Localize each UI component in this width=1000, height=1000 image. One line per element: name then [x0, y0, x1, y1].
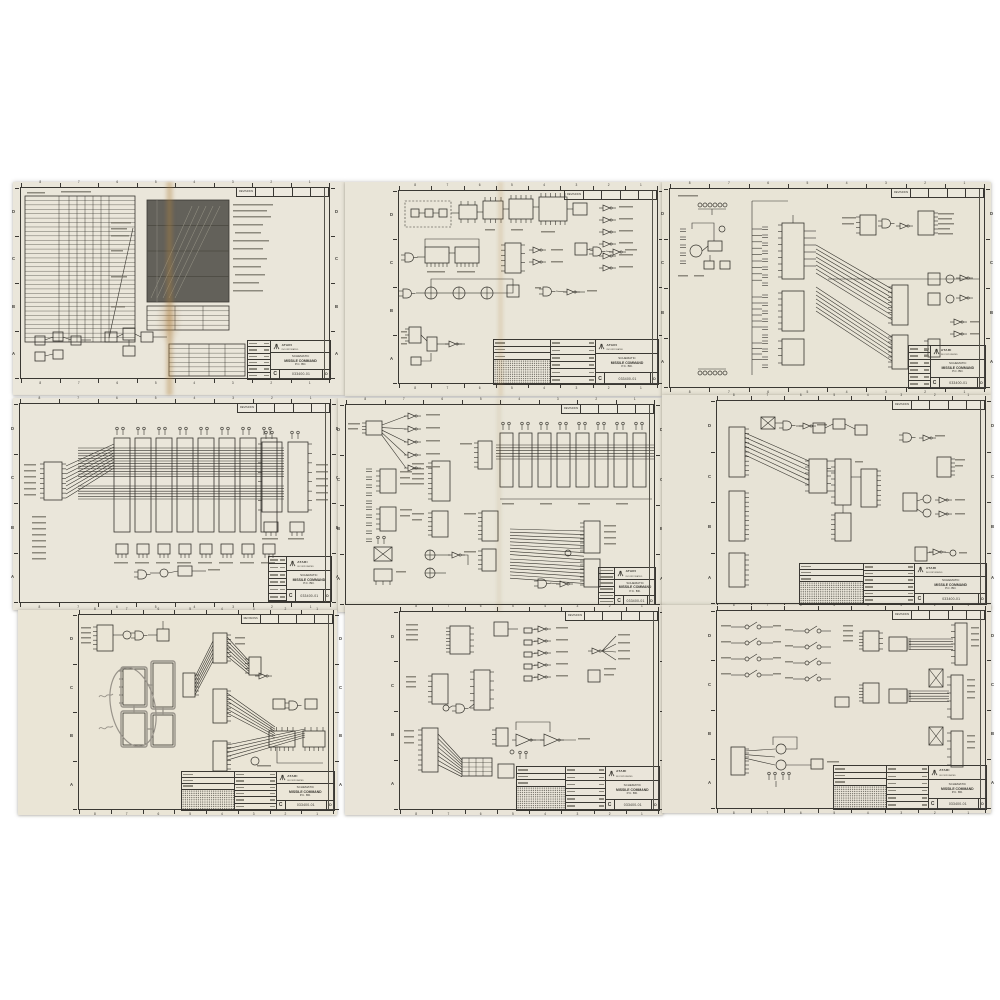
zone-tick: [73, 664, 77, 665]
zone-letter: C: [990, 261, 993, 265]
revision-cell: [949, 611, 967, 619]
zone-tick: [15, 188, 19, 189]
drawing-number: 033400-01: [624, 596, 647, 605]
zone-letter: A: [390, 357, 393, 361]
zone-tick: [332, 454, 336, 455]
approvals-column: [800, 564, 864, 604]
drawing-title: SCHEMATICMISSILE COMMANDP.C. BD.: [931, 360, 985, 378]
zone-number: 5: [833, 394, 835, 397]
company-row: ATARIINCORPORATED: [915, 564, 986, 577]
text-bar: [280, 581, 285, 583]
zone-letter: D: [339, 637, 342, 641]
zone-tick: [214, 379, 215, 383]
field-row: [887, 766, 928, 773]
zone-number: 5: [480, 398, 482, 401]
revision-letter: D: [647, 596, 655, 605]
text-bar: [236, 799, 244, 801]
zone-letter: D: [11, 427, 14, 431]
pcb-artwork-thumbnail: [834, 786, 886, 809]
text-bar: [264, 349, 269, 351]
zone-number: 3: [576, 605, 578, 608]
zone-number: 3: [900, 604, 902, 607]
zone-tick: [539, 400, 540, 404]
title-block-main: ATARIINCORPORATEDSCHEMATICMISSILE COMMAN…: [277, 772, 334, 810]
field-row: [887, 795, 928, 802]
revision-cell: [603, 612, 621, 620]
zone-number: 2: [271, 606, 273, 609]
approval-row: [494, 340, 550, 347]
revision-cell: [275, 404, 293, 412]
revision-cell: [261, 615, 279, 623]
field-row: [566, 796, 604, 803]
field-row: [235, 804, 276, 810]
zone-tick: [664, 189, 668, 190]
zone-number: 4: [221, 813, 223, 816]
revision-cell: [929, 189, 947, 197]
zone-tick: [98, 379, 99, 383]
zone-tick: [340, 405, 344, 406]
zone-number: 2: [284, 813, 286, 816]
zone-tick: [331, 236, 335, 237]
company-subtitle: INCORPORATED: [939, 775, 956, 777]
text-bar: [495, 349, 505, 351]
field-row: [909, 381, 930, 388]
title-block-main: ATARIINCORPORATEDSCHEMATICMISSILE COMMAN…: [915, 564, 986, 604]
text-bar: [589, 342, 594, 344]
zone-number: 4: [867, 604, 869, 607]
company-name: ATARI: [626, 569, 637, 573]
text-bar: [264, 343, 269, 345]
drawing-title: SCHEMATICMISSILE COMMANDP.C. BD.: [915, 577, 986, 594]
text-bar: [552, 364, 560, 366]
field-row: [909, 353, 930, 360]
text-bar: [270, 559, 278, 561]
zone-number: 8: [414, 387, 416, 390]
zone-letter: D: [708, 634, 711, 638]
zone-number: 8: [38, 606, 40, 609]
field-row: [909, 360, 930, 367]
field-row: [566, 781, 604, 788]
zone-tick: [206, 610, 207, 614]
text-bar: [608, 570, 613, 572]
revision-strip: REVISIONS: [236, 187, 330, 197]
zone-tick: [111, 610, 112, 614]
zone-tick: [711, 452, 715, 453]
zone-number: 1: [641, 605, 643, 608]
zone-number: 2: [271, 397, 273, 400]
drawing-number-row: C033400-01D: [277, 801, 334, 810]
zone-letter: A: [661, 360, 664, 364]
zone-tick: [986, 338, 990, 339]
zone-number: 7: [78, 181, 80, 184]
company-row: ATARIINCORPORATED: [606, 767, 659, 781]
zone-tick: [136, 399, 137, 403]
zone-number: 2: [270, 181, 272, 184]
company-row: ATARIINCORPORATED: [931, 346, 985, 360]
text-bar: [567, 784, 575, 786]
zone-letter: C: [661, 261, 664, 265]
zone-number: 1: [316, 608, 318, 611]
zone-number: 6: [800, 394, 802, 397]
zone-tick: [73, 615, 77, 616]
approval-row: [834, 779, 886, 786]
text-bar: [567, 798, 575, 800]
title-line-board: P.C. BD.: [303, 582, 314, 586]
text-bar: [236, 793, 244, 795]
zone-letter: C: [708, 683, 711, 687]
text-bar: [518, 769, 528, 771]
text-bar: [801, 578, 811, 580]
zone-tick: [818, 396, 819, 400]
approvals-column: [182, 772, 235, 810]
revision-cell: [256, 188, 274, 196]
zone-tick: [432, 810, 433, 814]
text-bar: [865, 593, 873, 595]
zone-number: 2: [595, 398, 597, 401]
zone-letter: C: [11, 476, 14, 480]
sheet-frame: 8877665544332211DDCCBBAAREVISIONSATARIIN…: [398, 190, 658, 384]
zone-number: 2: [270, 382, 272, 385]
zone-tick: [330, 603, 331, 607]
text-bar: [264, 362, 269, 364]
zone-tick: [987, 710, 991, 711]
company-text: ATARIINCORPORATED: [287, 774, 304, 782]
text-bar: [567, 791, 575, 793]
text-bar: [236, 774, 244, 776]
zone-number: 3: [900, 394, 902, 397]
zone-tick: [465, 607, 466, 611]
text-bar: [910, 383, 918, 385]
zone-tick: [331, 378, 335, 379]
drawing-title: SCHEMATICMISSILE COMMANDP.C. BD.: [277, 784, 334, 800]
text-bar: [249, 349, 257, 351]
text-bar: [600, 601, 608, 603]
zone-number: 5: [833, 604, 835, 607]
title-block: ATARIINCORPORATEDSCHEMATICMISSILE COMMAN…: [268, 556, 332, 602]
zone-tick: [986, 239, 990, 240]
zone-tick: [331, 331, 335, 332]
zone-tick: [111, 810, 112, 814]
revision-letter: D: [322, 370, 330, 379]
revisions-label: REVISIONS: [566, 612, 585, 620]
field-row: [864, 597, 914, 604]
zone-letter: A: [990, 360, 993, 364]
zone-letter: D: [661, 212, 664, 216]
zone-number: 2: [934, 604, 936, 607]
zone-tick: [717, 396, 718, 400]
field-row: [864, 577, 914, 584]
zone-tick: [464, 186, 465, 190]
zone-letter: D: [991, 424, 994, 428]
revision-cell: [315, 615, 333, 623]
zone-number: 1: [634, 398, 636, 401]
text-bar: [910, 355, 918, 357]
zone-tick: [866, 388, 867, 392]
schematic-sheet-6: 8877665544332211DDCCBBAAREVISIONSATARIIN…: [662, 395, 991, 610]
zone-tick: [340, 505, 344, 506]
revisions-label: REVISIONS: [892, 189, 911, 197]
zone-number: 7: [447, 605, 449, 608]
zone-tick: [346, 400, 347, 404]
text-bar: [922, 797, 927, 799]
revision-strip: REVISIONS: [892, 610, 986, 620]
field-row: [566, 774, 604, 781]
zone-tick: [827, 184, 828, 188]
zone-tick: [331, 188, 335, 189]
company-subtitle: INCORPORATED: [941, 354, 958, 356]
zone-tick: [332, 553, 336, 554]
zone-tick: [711, 808, 715, 809]
pcb-artwork-thumbnail: [494, 360, 550, 384]
revision-letter: D: [323, 590, 331, 601]
title-block: ATARIINCORPORATEDSCHEMATICMISSILE COMMAN…: [516, 766, 660, 811]
text-bar: [922, 776, 927, 778]
zone-number: 1: [963, 182, 965, 185]
zone-letter: D: [12, 210, 15, 214]
zone-tick: [885, 396, 886, 400]
zone-number: 2: [284, 608, 286, 611]
zone-number: 4: [846, 182, 848, 185]
schematic-sheet-2: 8877665544332211DDCCBBAAREVISIONSATARIIN…: [345, 182, 662, 396]
revision-letter: D: [978, 594, 986, 604]
sheet-size-letter: C: [287, 590, 296, 601]
revision-strip: REVISIONS: [892, 400, 986, 410]
atari-fuji-logo-icon: [273, 342, 280, 352]
zone-number: 4: [193, 397, 195, 400]
zone-tick: [749, 184, 750, 188]
zone-number: 4: [544, 813, 546, 816]
zone-number: 7: [766, 604, 768, 607]
zone-number: 8: [415, 605, 417, 608]
text-bar: [270, 799, 275, 801]
zone-number: 3: [232, 382, 234, 385]
text-bar: [599, 791, 604, 793]
company-name: ATARI: [287, 774, 298, 778]
text-bar: [865, 579, 873, 581]
drawing-title: SCHEMATICMISSILE COMMANDP.C. BD.: [287, 571, 331, 590]
text-bar: [589, 364, 594, 366]
revision-strip: REVISIONS: [241, 614, 334, 624]
sheet-frame: 8877665544332211DDCCBBAAREVISIONSATARIIN…: [399, 611, 659, 810]
zone-number: 5: [512, 605, 514, 608]
zone-letter: B: [708, 525, 711, 529]
text-bar: [249, 343, 257, 345]
atari-fuji-logo-icon: [617, 569, 624, 579]
zone-tick: [332, 602, 336, 603]
zone-number: 4: [193, 606, 195, 609]
zone-number: 1: [967, 812, 969, 815]
text-bar: [270, 806, 275, 808]
zone-number: 6: [441, 398, 443, 401]
text-bar: [865, 573, 873, 575]
zone-tick: [788, 388, 789, 392]
sheet-size-letter: C: [915, 594, 924, 604]
zone-number: 3: [253, 608, 255, 611]
field-row: [887, 802, 928, 809]
zone-tick: [717, 809, 718, 813]
zone-tick: [214, 183, 215, 187]
drawing-number: 033400-01: [605, 373, 650, 384]
zone-tick: [15, 331, 19, 332]
zone-letter: B: [70, 734, 73, 738]
schematic-sheet-5: 8877665544332211DDCCBBAAREVISIONSATARIIN…: [338, 398, 662, 612]
zone-tick: [709, 184, 710, 188]
zone-tick: [827, 388, 828, 392]
revision-cell: [293, 188, 311, 196]
text-bar: [589, 350, 594, 352]
company-subtitle: INCORPORATED: [607, 349, 624, 351]
zone-tick: [98, 399, 99, 403]
text-bar: [270, 787, 275, 789]
zone-number: 1: [640, 184, 642, 187]
field-row: [269, 586, 286, 593]
title-line-board: P.C. BD.: [300, 794, 311, 798]
zone-letter: D: [337, 428, 340, 432]
zone-tick: [15, 378, 19, 379]
title-block-main: ATARIINCORPORATEDSCHEMATICMISSILE COMMAN…: [271, 341, 330, 379]
text-bar: [888, 790, 896, 792]
zone-tick: [136, 603, 137, 607]
field-row: [909, 346, 930, 353]
schematic-sheet-7: 8877665544332211DDCCBBAAREVISIONSATARIIN…: [18, 610, 337, 815]
company-row: ATARIINCORPORATED: [277, 772, 334, 784]
zone-tick: [711, 611, 715, 612]
zone-tick: [73, 712, 77, 713]
revisions-label: REVISIONS: [562, 405, 581, 413]
text-bar: [280, 574, 285, 576]
text-bar: [236, 787, 244, 789]
zone-tick: [393, 287, 397, 288]
text-bar: [567, 769, 575, 771]
zone-tick: [20, 399, 21, 403]
field-row: [551, 377, 595, 384]
company-text: ATARIINCORPORATED: [297, 560, 314, 568]
field-row: [551, 369, 595, 376]
zone-number: 2: [934, 394, 936, 397]
revision-cell: [911, 189, 929, 197]
zone-letter: C: [991, 475, 994, 479]
zone-letter: C: [12, 257, 15, 261]
revision-letter: D: [977, 378, 985, 388]
text-bar: [236, 780, 244, 782]
zone-number: 5: [155, 181, 157, 184]
zone-letter: D: [335, 210, 338, 214]
zone-number: 8: [39, 181, 41, 184]
text-bar: [922, 804, 927, 806]
title-block-fields: [269, 557, 287, 601]
drawing-number-row: C033400-01D: [915, 594, 986, 604]
text-bar: [608, 595, 613, 597]
zone-number: 8: [733, 394, 735, 397]
revision-cell: [618, 405, 636, 413]
zone-tick: [79, 610, 80, 614]
zone-tick: [14, 503, 18, 504]
zone-letter: A: [11, 575, 14, 579]
zone-tick: [529, 607, 530, 611]
zone-tick: [664, 387, 668, 388]
company-text: ATARIINCORPORATED: [607, 343, 624, 351]
company-subtitle: INCORPORATED: [616, 776, 633, 778]
text-bar: [835, 775, 845, 777]
title-block-main: ATARIINCORPORATEDSCHEMATICMISSILE COMMAN…: [606, 767, 659, 810]
zone-number: 4: [846, 391, 848, 394]
revision-cell: [912, 611, 930, 619]
zone-tick: [21, 379, 22, 383]
text-bar: [270, 780, 275, 782]
revision-cell: [585, 612, 603, 620]
text-bar: [270, 793, 275, 795]
revision-letter: D: [978, 799, 986, 809]
zone-tick: [987, 603, 991, 604]
schematic-sheet-8: 8877665544332211DDCCBBAAREVISIONSATARIIN…: [345, 605, 663, 815]
title-block: ATARIINCORPORATEDSCHEMATICMISSILE COMMAN…: [598, 567, 656, 606]
zone-letter: D: [990, 212, 993, 216]
text-bar: [908, 566, 913, 568]
zone-tick: [394, 711, 398, 712]
zone-number: 8: [364, 398, 366, 401]
zone-number: 5: [189, 813, 191, 816]
text-bar: [280, 589, 285, 591]
text-bar: [924, 348, 929, 350]
title-block: ATARIINCORPORATEDSCHEMATICMISSILE COMMAN…: [799, 563, 987, 605]
text-bar: [264, 356, 269, 358]
zone-tick: [711, 710, 715, 711]
zone-tick: [331, 283, 335, 284]
zone-tick: [711, 401, 715, 402]
revision-strip: REVISIONS: [564, 190, 658, 200]
zone-tick: [393, 239, 397, 240]
zone-letter: A: [335, 352, 338, 356]
approval-row: [517, 767, 565, 774]
field-row: [551, 355, 595, 362]
revision-cell: [966, 189, 984, 197]
zone-number: 4: [543, 184, 545, 187]
zone-letter: A: [339, 783, 342, 787]
field-row: [269, 564, 286, 571]
atari-fuji-logo-icon: [289, 559, 296, 569]
field-row: [248, 373, 270, 379]
zone-number: 8: [689, 391, 691, 394]
field-row: [551, 347, 595, 354]
approval-row: [494, 347, 550, 354]
field-row: [864, 564, 914, 571]
field-row: [566, 767, 604, 774]
zone-letter: B: [391, 733, 394, 737]
revision-cell: [257, 404, 275, 412]
zone-number: 4: [867, 394, 869, 397]
zone-tick: [711, 603, 715, 604]
revision-cell: [948, 189, 966, 197]
zone-tick: [59, 399, 60, 403]
zone-number: 4: [543, 387, 545, 390]
revisions-label: REVISIONS: [893, 611, 912, 619]
zone-number: 8: [733, 604, 735, 607]
drawing-number: 033400-01: [938, 799, 978, 809]
zone-tick: [394, 612, 398, 613]
zone-tick: [751, 809, 752, 813]
title-block-fields: [248, 341, 271, 379]
zone-tick: [851, 606, 852, 610]
zone-letter: B: [11, 526, 14, 530]
sheet-frame: 8877665544332211DDCCBBAAREVISIONSATARIIN…: [669, 188, 985, 388]
company-text: ATARIINCORPORATED: [926, 566, 943, 574]
approvals-column: [494, 340, 551, 384]
zone-number: 3: [885, 182, 887, 185]
revision-cell: [622, 612, 640, 620]
zone-tick: [393, 335, 397, 336]
drawing-number-row: C033400-01D: [929, 799, 986, 809]
text-bar: [599, 769, 604, 771]
